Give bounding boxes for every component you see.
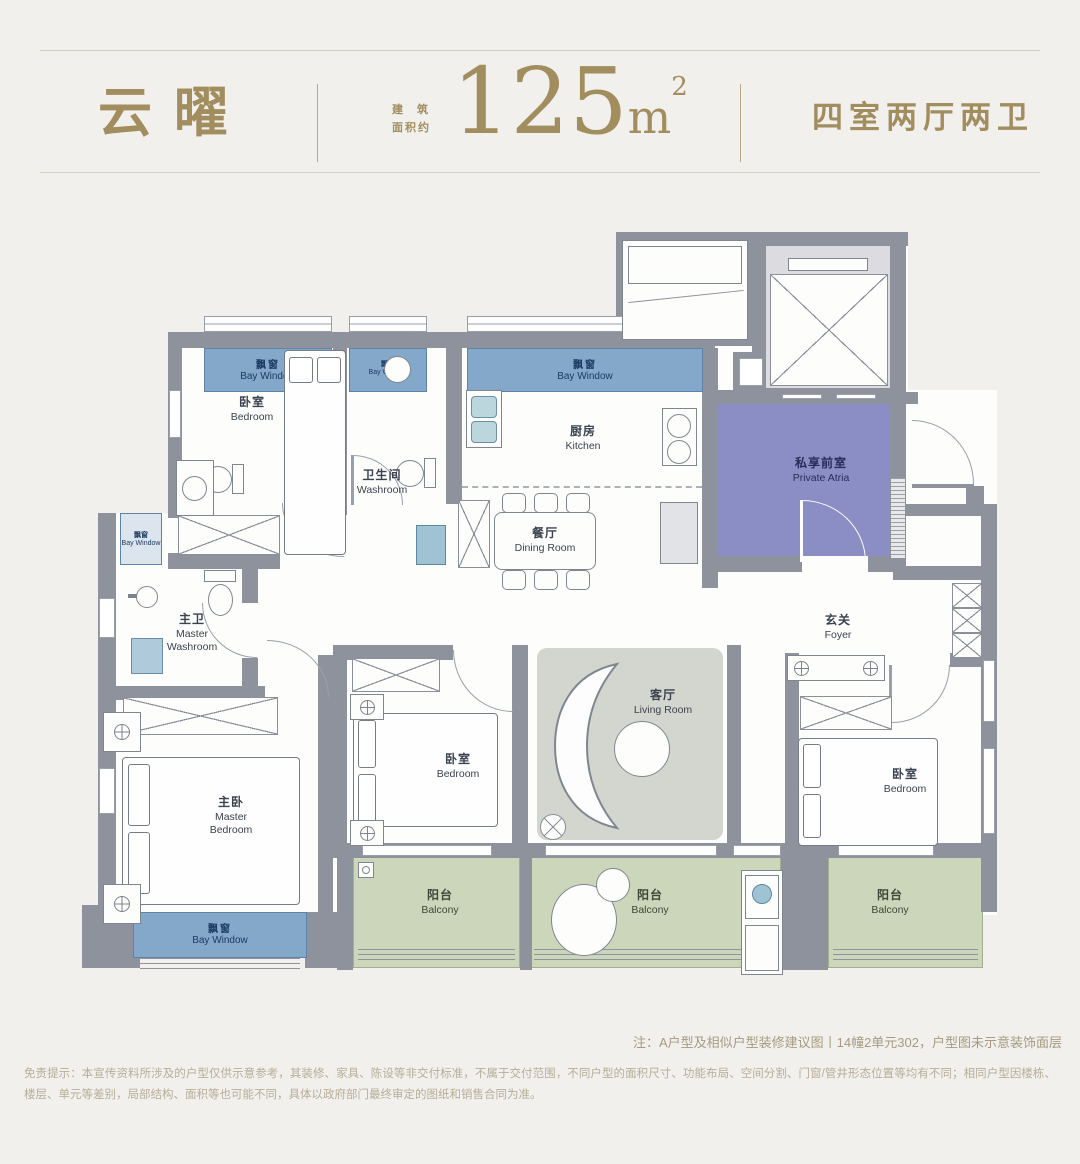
room-label-bedroom: 卧室 Bedroom — [212, 395, 292, 424]
toilet-tank — [424, 458, 436, 488]
bay-window-label-zh: 飘窗 — [134, 920, 306, 935]
stairwell-landing — [628, 246, 742, 284]
dining-chair — [534, 493, 558, 513]
balcony-door-slot — [733, 845, 781, 856]
elevator-lintel — [788, 258, 868, 271]
wall — [446, 332, 462, 504]
flower-pin-icon — [360, 826, 375, 841]
toilet-tank — [204, 570, 236, 582]
coffee-table — [614, 721, 670, 777]
shoe-cabinet — [952, 633, 982, 658]
wall — [512, 645, 528, 858]
room-label-bedroom: 卧室 Bedroom — [865, 767, 945, 796]
pipe-shaft-hatch — [891, 478, 905, 558]
pillow — [358, 774, 376, 822]
label-zh: 卧室 — [865, 767, 945, 783]
flower-pin-icon — [863, 661, 878, 676]
label-en: Washroom — [342, 484, 422, 498]
sink-basin — [471, 396, 497, 418]
window-glass — [349, 316, 427, 332]
label-en: Kitchen — [543, 440, 623, 454]
room-label-master-washroom: 主卫 Master Washroom — [160, 612, 224, 655]
pillow — [317, 357, 341, 383]
bay-window-label-en: Bay Window — [468, 371, 702, 382]
bay-window-label-en: Bay Window — [134, 935, 306, 946]
disclaimer-text: 免责提示：本宣传资料所涉及的户型仅供示意参考，其装修、家具、陈设等非交付标准，不… — [24, 1064, 1056, 1107]
label-zh: 阳台 — [610, 888, 690, 904]
bay-window-label-en: Bay Window — [121, 540, 161, 547]
flower-pin-icon — [794, 661, 809, 676]
label-en: Balcony — [400, 904, 480, 918]
stove-burner — [667, 414, 691, 438]
window-glass — [204, 316, 332, 332]
label-zh: 主卫 — [160, 612, 224, 628]
shaft-duct-inner — [739, 358, 763, 386]
washroom-sink — [384, 356, 411, 383]
tall-cabinet — [458, 500, 490, 568]
floor-plan-page: 云曜 建筑 面积约 125m2 四室两厅两卫 — [0, 0, 1080, 1164]
wall — [781, 843, 828, 970]
dining-chair — [566, 493, 590, 513]
label-en: Private Atria — [766, 472, 876, 486]
wall — [242, 569, 258, 603]
room-label-master-bedroom: 主卧 Master Bedroom — [199, 795, 263, 838]
label-en: Master Bedroom — [199, 811, 263, 838]
label-zh: 客厅 — [608, 688, 718, 704]
bay-window: 飘窗 Bay Window — [133, 912, 307, 958]
balcony-door-slot — [838, 845, 934, 856]
label-en: Balcony — [850, 904, 930, 918]
flower-pin-icon — [114, 896, 130, 912]
plan-note: 注：A户型及相似户型装修建议图丨14幢2单元302，户型图未示意装饰面层 — [633, 1032, 1062, 1051]
label-en: Living Room — [608, 704, 718, 718]
room-label-private-atria: 私享前室 Private Atria — [766, 456, 876, 485]
wall — [520, 843, 532, 970]
flower-pin-icon — [360, 700, 375, 715]
dining-chair — [502, 570, 526, 590]
balcony-door-slot — [362, 845, 492, 856]
label-zh: 主卧 — [199, 795, 263, 811]
toilet-tank — [232, 464, 244, 494]
elevator-door — [782, 394, 822, 399]
label-zh: 卫生间 — [342, 468, 422, 484]
room-label-foyer: 玄关 Foyer — [798, 613, 878, 642]
bay-window-label-zh: 飘窗 — [468, 356, 702, 371]
room-label-bedroom: 卧室 Bedroom — [418, 752, 498, 781]
window-slot — [99, 768, 115, 814]
label-zh: 餐厅 — [497, 526, 593, 542]
nightstand — [350, 820, 384, 846]
label-zh: 卧室 — [212, 395, 292, 411]
sink-basin — [471, 421, 497, 443]
master-sink — [136, 586, 158, 608]
label-en: Bedroom — [865, 783, 945, 797]
bay-window-railing — [140, 958, 300, 970]
wall — [727, 645, 741, 843]
pillow — [803, 794, 821, 838]
entry-door-leaf — [912, 484, 974, 488]
refrigerator — [416, 525, 446, 565]
window-slot — [99, 598, 115, 638]
label-en: Foyer — [798, 629, 878, 643]
wall — [890, 246, 906, 400]
wardrobe — [178, 515, 280, 555]
wall — [333, 645, 347, 858]
pantry-cabinet — [660, 502, 698, 564]
flower-pin-icon — [114, 724, 130, 740]
door-leaf — [800, 500, 803, 562]
label-en: Bedroom — [418, 768, 498, 782]
bay-window: 飘窗 Bay Window — [467, 348, 703, 392]
elevator-door — [836, 394, 876, 399]
label-zh: 阳台 — [400, 888, 480, 904]
balcony-door-slot — [545, 845, 717, 856]
shoe-cabinet — [952, 583, 982, 608]
foyer-bench — [787, 655, 885, 681]
label-en: Bedroom — [212, 411, 292, 425]
pillow — [128, 764, 150, 826]
room-label-washroom: 卫生间 Washroom — [342, 468, 422, 497]
faucet — [128, 594, 137, 598]
wall — [906, 392, 918, 404]
bay-window-small: 飘窗 Bay Window — [120, 513, 162, 565]
wardrobe — [123, 697, 278, 735]
room-label-balcony: 阳台 Balcony — [850, 888, 930, 917]
wall — [168, 553, 280, 569]
window-slot — [983, 660, 995, 722]
floor-plan: 飘窗 Bay Window 飘窗 Bay Window 飘窗 Bay Windo… — [0, 0, 1080, 1030]
dining-chair — [534, 570, 558, 590]
washing-machine — [745, 925, 779, 971]
dining-chair — [566, 570, 590, 590]
pillow — [289, 357, 313, 383]
nightstand — [103, 712, 141, 752]
room-label-balcony: 阳台 Balcony — [400, 888, 480, 917]
pillow — [358, 720, 376, 768]
label-zh: 玄关 — [798, 613, 878, 629]
bay-window-label-zh: 飘窗 — [121, 530, 161, 540]
room-label-kitchen: 厨房 Kitchen — [543, 424, 623, 453]
window-slot — [169, 390, 181, 438]
wardrobe — [352, 658, 440, 692]
label-zh: 卧室 — [418, 752, 498, 768]
laundry-basin — [752, 884, 772, 904]
label-en: Master Washroom — [160, 628, 224, 655]
wall — [785, 653, 799, 843]
wall — [305, 912, 347, 968]
pillow — [803, 744, 821, 788]
label-zh: 阳台 — [850, 888, 930, 904]
balcony-railing — [833, 949, 978, 964]
elevator-car — [770, 274, 888, 386]
label-en: Dining Room — [497, 542, 593, 556]
room-label-balcony: 阳台 Balcony — [610, 888, 690, 917]
dining-chair — [502, 493, 526, 513]
stove-burner — [667, 440, 691, 464]
floor-drain — [358, 862, 374, 878]
nightstand — [350, 694, 384, 720]
label-zh: 厨房 — [543, 424, 623, 440]
shoe-cabinet — [952, 608, 982, 633]
balcony-railing — [358, 949, 515, 964]
floor-lamp — [540, 814, 566, 840]
kitchen-boundary-dashed — [462, 486, 702, 488]
wall — [981, 578, 997, 912]
wall — [702, 556, 802, 572]
nightstand — [103, 884, 141, 924]
label-zh: 私享前室 — [766, 456, 876, 472]
label-en: Balcony — [610, 904, 690, 918]
wardrobe — [800, 696, 892, 730]
room-label-living: 客厅 Living Room — [608, 688, 718, 717]
window-slot — [983, 748, 995, 834]
vanity-sink — [182, 476, 207, 501]
drain-hole — [362, 866, 370, 874]
shower — [131, 638, 163, 674]
room-label-dining: 餐厅 Dining Room — [497, 526, 593, 555]
